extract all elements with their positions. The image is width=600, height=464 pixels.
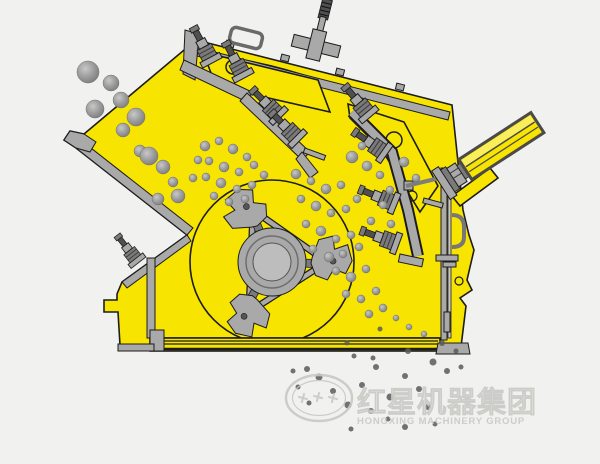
watermark-cn-text: 红星机器集团 [357,385,537,419]
impact-crusher-diagram: 红星机器集团 HONGXING MACHINERY GROUP [0,0,600,464]
left-foot-plate [118,344,154,351]
watermark-en-text: HONGXING MACHINERY GROUP [357,416,525,427]
support-strut [147,258,155,338]
diagram-canvas: 红星机器集团 HONGXING MACHINERY GROUP [0,0,600,464]
rotor-hub [238,228,306,296]
